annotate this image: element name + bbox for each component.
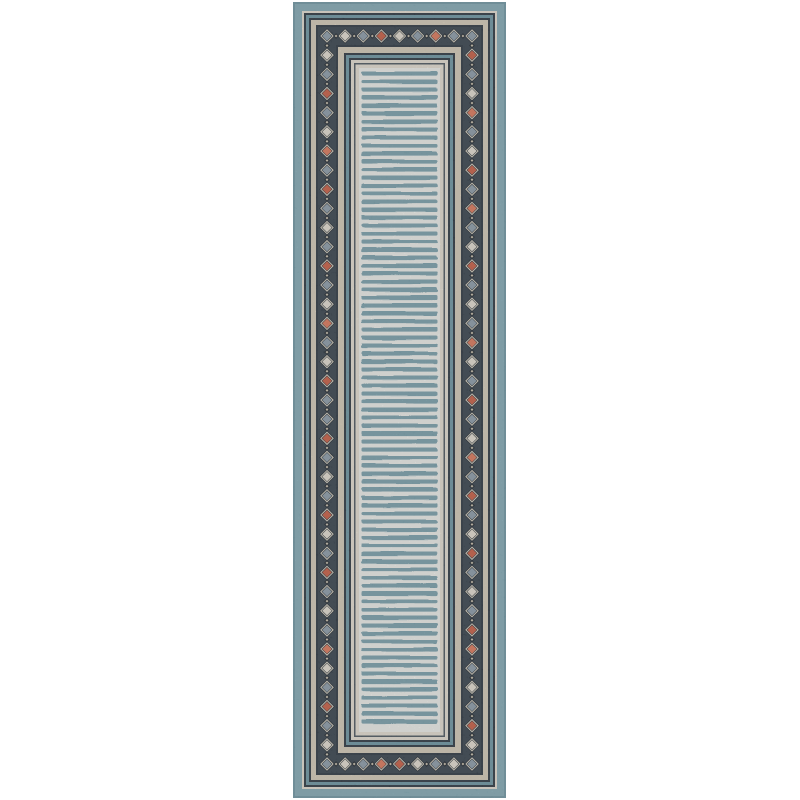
rug-image [293, 2, 506, 798]
product-photo-canvas [0, 0, 800, 800]
